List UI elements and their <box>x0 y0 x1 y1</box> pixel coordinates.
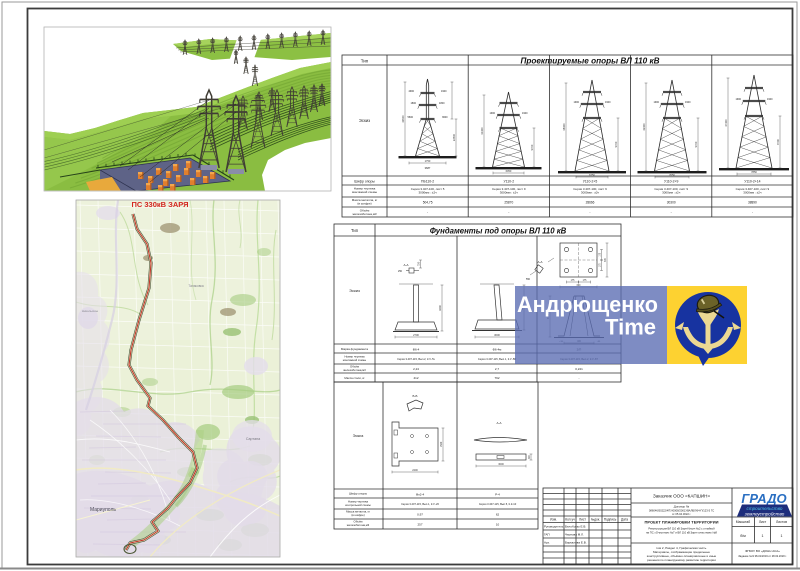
svg-text:9700: 9700 <box>694 141 698 147</box>
svg-text:3000мм : ±2ч: 3000мм : ±2ч <box>581 191 600 195</box>
svg-text:9700: 9700 <box>530 144 534 150</box>
svg-text:монтажной схемы: монтажной схемы <box>352 190 377 194</box>
svg-text:Белобокко Е.В.: Белобокко Е.В. <box>565 525 586 529</box>
svg-text:Подпись: Подпись <box>604 518 617 522</box>
svg-text:6050: 6050 <box>506 169 512 173</box>
svg-text:Масса стали, кг: Масса стали, кг <box>344 376 364 380</box>
svg-text:У110-2: У110-2 <box>504 179 515 183</box>
svg-text:550: 550 <box>526 278 531 281</box>
svg-text:Тип: Тип <box>351 228 358 233</box>
svg-text:0,97: 0,97 <box>417 513 423 517</box>
svg-text:5600: 5600 <box>407 116 413 119</box>
svg-text:землеустройство: землеустройство <box>744 511 785 517</box>
svg-text:Договор №: Договор № <box>674 505 690 509</box>
svg-text:-: - <box>589 211 590 215</box>
svg-text:1750: 1750 <box>425 159 431 163</box>
svg-text:Дата: Дата <box>621 518 628 522</box>
svg-text:Фп2-4: Фп2-4 <box>416 493 425 497</box>
svg-text:Б-Б: Б-Б <box>413 394 418 398</box>
svg-text:Заказчик ООО «КАПШИН»: Заказчик ООО «КАПШИН» <box>653 494 711 499</box>
svg-text:25870: 25870 <box>504 201 513 205</box>
svg-text:(в шифре): (в шифре) <box>351 513 364 517</box>
svg-text:1900: 1900 <box>735 98 741 101</box>
svg-text:3000мм : ±2ч: 3000мм : ±2ч <box>662 191 681 195</box>
svg-text:Листов: Листов <box>776 520 787 524</box>
svg-text:2,7: 2,7 <box>495 367 500 371</box>
svg-text:-: - <box>508 211 509 215</box>
svg-text:750: 750 <box>417 261 421 266</box>
svg-text:Руководитель: Руководитель <box>544 525 564 529</box>
svg-text:22500: 22500 <box>452 133 456 141</box>
svg-text:ПС 330кВ ЗАРЯ: ПС 330кВ ЗАРЯ <box>132 200 189 209</box>
svg-text:Time: Time <box>605 315 656 340</box>
svg-text:30300: 30300 <box>667 201 676 205</box>
svg-text:Мариуполь: Мариуполь <box>90 507 116 513</box>
svg-text:б/м: б/м <box>740 534 746 538</box>
svg-text:Андрющенко: Андрющенко <box>517 292 658 317</box>
svg-text:257: 257 <box>417 523 422 527</box>
svg-text:монтажной схемы: монтажной схемы <box>343 358 366 362</box>
svg-text:Серия 3.407-115, Вып.5, К.К-10: Серия 3.407-115, Вып.5, К.К-10 <box>479 502 517 506</box>
svg-text:42400: 42400 <box>642 123 646 131</box>
svg-text:-: - <box>427 211 428 215</box>
svg-text:10: 10 <box>496 523 500 527</box>
svg-text:Проектируемые опоры ВЛ 110 кВ: Проектируемые опоры ВЛ 110 кВ <box>520 57 659 66</box>
svg-text:3240: 3240 <box>438 305 442 311</box>
svg-text:0,241: 0,241 <box>575 367 583 371</box>
svg-text:Серия 3.407-115, Вып.1, К.У.-5: Серия 3.407-115, Вып.1, К.У.-5В <box>478 357 516 361</box>
svg-text:(в шифре): (в шифре) <box>357 202 371 206</box>
svg-text:792: 792 <box>494 376 499 380</box>
svg-text:Серия 3.407-115, Вып.1, К.У.-2: Серия 3.407-115, Вып.1, К.У.-20 <box>401 502 439 506</box>
svg-text:№док.: №док. <box>591 518 600 522</box>
svg-text:Эскиз: Эскиз <box>349 288 360 293</box>
svg-text:У110-2+5: У110-2+5 <box>583 179 598 183</box>
svg-text:ПБ110-2: ПБ110-2 <box>421 179 434 183</box>
svg-text:У110-2+9: У110-2+9 <box>664 179 679 183</box>
svg-text:3000мм : ±2ч: 3000мм : ±2ч <box>419 191 438 195</box>
svg-text:Марка фундамента: Марка фундамента <box>341 347 368 351</box>
svg-text:Лист: Лист <box>759 520 767 524</box>
svg-text:3687: 3687 <box>425 166 431 170</box>
svg-text:47400: 47400 <box>724 119 728 127</box>
svg-text:Талаковка: Талаковка <box>188 284 204 288</box>
svg-text:-: - <box>671 211 672 215</box>
svg-text:-: - <box>752 211 753 215</box>
svg-text:3600: 3600 <box>442 116 448 119</box>
svg-text:28666: 28666 <box>586 201 595 205</box>
svg-text:ФГБОУ ВО «ДОНН АСА»: ФГБОУ ВО «ДОНН АСА» <box>745 549 780 553</box>
svg-text:Задание №Э 38-01/2019 от 28.02: Задание №Э 38-01/2019 от 28.02.2020 г. <box>738 554 787 558</box>
svg-text:Реконструкция ВЛ 110 кВ Заря-И: Реконструкция ВЛ 110 кВ Заря-Ильич №2 с … <box>648 527 715 531</box>
svg-text:1900: 1900 <box>767 98 773 101</box>
svg-text:Серия 3.407-115, Вып.2, К.У.-5: Серия 3.407-115, Вып.2, К.У.-5ч <box>397 357 435 361</box>
svg-text:У110-2+14: У110-2+14 <box>744 179 760 183</box>
svg-text:38890: 38890 <box>748 201 757 205</box>
svg-text:А-А: А-А <box>496 421 501 425</box>
svg-text:7050: 7050 <box>669 173 675 177</box>
svg-text:250: 250 <box>398 270 403 273</box>
svg-text:Изм.: Изм. <box>550 518 557 522</box>
svg-text:1900: 1900 <box>441 90 447 93</box>
svg-text:ГРАДО: ГРАДО <box>741 491 786 506</box>
svg-text:Чернова М.Л.: Чернова М.Л. <box>565 533 584 537</box>
svg-text:1900: 1900 <box>489 112 495 115</box>
svg-text:Никольское: Никольское <box>82 309 99 313</box>
svg-text:3000: 3000 <box>498 463 504 466</box>
svg-text:1900: 1900 <box>685 101 691 104</box>
svg-text:2,24: 2,24 <box>413 367 419 371</box>
svg-text:железобетона,м3: железобетона,м3 <box>347 523 370 527</box>
svg-text:62: 62 <box>496 513 500 517</box>
svg-text:1900: 1900 <box>573 101 579 104</box>
svg-text:1: 1 <box>781 534 783 538</box>
svg-text:Масштаб: Масштаб <box>736 520 751 524</box>
svg-text:1900: 1900 <box>653 101 659 104</box>
svg-text:А-А: А-А <box>537 260 542 264</box>
svg-text:1800: 1800 <box>439 102 445 105</box>
svg-text:38400: 38400 <box>562 123 566 131</box>
svg-text:31400: 31400 <box>480 127 484 135</box>
svg-text:4900: 4900 <box>408 90 414 93</box>
svg-text:-: - <box>579 376 580 380</box>
svg-text:Лист: Лист <box>579 518 586 522</box>
svg-text:412: 412 <box>413 376 418 380</box>
svg-text:1800: 1800 <box>410 102 416 105</box>
svg-text:1: 1 <box>762 534 764 538</box>
svg-text:Баркалова Е.В.: Баркалова Е.В. <box>565 541 587 545</box>
svg-text:43500: 43500 <box>401 115 405 123</box>
svg-text:Ф6-4м: Ф6-4м <box>493 348 502 352</box>
svg-text:ГАП: ГАП <box>544 533 550 537</box>
svg-text:Эскиз: Эскиз <box>359 118 370 123</box>
svg-text:А-А: А-А <box>403 263 408 267</box>
svg-text:1900: 1900 <box>522 112 528 115</box>
svg-text:2200: 2200 <box>412 469 418 472</box>
svg-text:9700: 9700 <box>614 141 618 147</box>
svg-text:Кол.уч: Кол.уч <box>565 518 575 522</box>
svg-text:железобетона,м3: железобетона,м3 <box>343 368 366 372</box>
svg-text:контрольной схемы: контрольной схемы <box>345 503 370 507</box>
svg-text:3000мм : ±2ч: 3000мм : ±2ч <box>500 191 519 195</box>
svg-text:3000мм : ±2ч: 3000мм : ±2ч <box>743 191 762 195</box>
svg-text:строительство: строительство <box>747 506 783 511</box>
svg-text:1900: 1900 <box>605 101 611 104</box>
svg-text:решения по планируемому развит: решения по планируемому развитию террито… <box>647 558 716 562</box>
svg-text:Шифр опоры: Шифр опоры <box>354 179 375 183</box>
svg-text:Шифр опоры: Шифр опоры <box>349 492 367 496</box>
svg-text:Арх.: Арх. <box>544 541 550 545</box>
svg-text:504,75: 504,75 <box>423 201 433 205</box>
svg-text:Фундаменты под опоры ВЛ 110 кВ: Фундаменты под опоры ВЛ 110 кВ <box>430 227 567 236</box>
svg-text:9700: 9700 <box>776 139 780 145</box>
svg-text:1500: 1500 <box>440 441 443 447</box>
svg-text:Ф6-4: Ф6-4 <box>413 348 420 352</box>
svg-text:железобетона,м3: железобетона,м3 <box>352 212 376 216</box>
svg-text:Тип: Тип <box>361 59 369 64</box>
svg-text:ПРОЕКТ ПЛАНИРОВКИ ТЕРРИТОРИИ: ПРОЕКТ ПЛАНИРОВКИ ТЕРРИТОРИИ <box>645 520 719 525</box>
svg-text:Сартана: Сартана <box>246 437 260 441</box>
svg-text:7850: 7850 <box>751 170 757 174</box>
svg-text:6750: 6750 <box>589 173 595 177</box>
svg-text:от 05.04.3022 г.: от 05.04.3022 г. <box>672 512 691 516</box>
svg-text:086046/50222/4ПУ/0008/2001УВАЛ: 086046/50222/4ПУ/0008/2001УВАЛБЛ/64-П/12… <box>649 509 714 513</box>
svg-text:3600: 3600 <box>494 333 500 337</box>
svg-text:2700: 2700 <box>413 333 419 337</box>
svg-text:на ПС «Очистная» №7 и ВЛ 110 к: на ПС «Очистная» №7 и ВЛ 110 кВ Заря-«оч… <box>646 531 717 535</box>
svg-text:Эскиз: Эскиз <box>353 433 364 438</box>
svg-text:Р-4: Р-4 <box>495 493 500 497</box>
